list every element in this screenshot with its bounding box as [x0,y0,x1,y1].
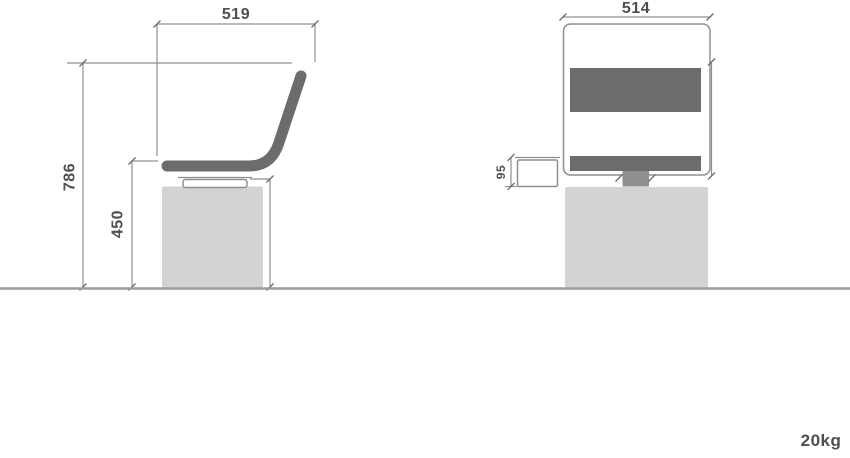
front-view-stem [623,171,650,187]
side-bracket-body [183,180,247,188]
side-height-label: 786 [62,163,79,191]
side-depth-label: 519 [222,6,250,23]
side-view-base-block [162,187,263,288]
chair-side-view: 519 786 450 [62,6,316,288]
front-view-backrest-band [570,68,701,112]
seat-height-label: 450 [110,210,127,238]
chair-front-view: 514 95 [494,0,712,288]
front-width-label: 514 [622,0,650,17]
chair-dimension-drawing: 519 786 450 514 [0,0,850,458]
weight-label: 20kg [801,431,842,450]
side-view-seat-profile [167,76,301,166]
bracket-detail-body [518,160,558,187]
front-view-base-block [565,187,708,288]
spec-drawing-canvas: 519 786 450 514 [0,0,850,458]
front-view-seat-bar [570,156,701,171]
bracket-height-label: 95 [494,165,508,179]
